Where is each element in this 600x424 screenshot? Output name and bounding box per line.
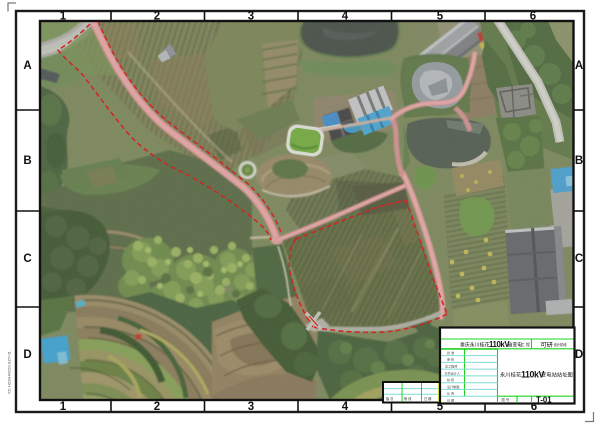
svg-text:工 程: 工 程 [521, 342, 530, 347]
svg-text:4: 4 [342, 401, 349, 413]
svg-text:C: C [23, 253, 31, 265]
svg-text:版 次: 版 次 [386, 396, 394, 401]
svg-text:D: D [575, 349, 583, 361]
svg-text:B: B [575, 155, 583, 167]
svg-text:可研: 可研 [541, 342, 553, 349]
svg-text:5: 5 [437, 11, 444, 23]
svg-text:A: A [575, 60, 583, 72]
svg-text:XC-HZ3H44220-SZT-01: XC-HZ3H44220-SZT-01 [7, 350, 12, 394]
svg-text:设计阶段: 设计阶段 [554, 342, 568, 347]
svg-text:批 准: 批 准 [447, 350, 454, 355]
svg-text:设计制图: 设计制图 [447, 384, 459, 389]
svg-text:日 期: 日 期 [424, 396, 431, 401]
svg-text:6: 6 [530, 11, 536, 23]
svg-text:1: 1 [60, 401, 67, 413]
svg-text:总工程师: 总工程师 [445, 364, 457, 369]
svg-text:3: 3 [248, 11, 254, 23]
svg-text:变电站站址图: 变电站站址图 [541, 371, 573, 379]
svg-text:主管设计人: 主管设计人 [445, 370, 460, 375]
svg-text:4: 4 [342, 11, 349, 23]
svg-text:校 核: 校 核 [447, 377, 454, 382]
svg-text:永川桂花: 永川桂花 [500, 371, 522, 379]
svg-text:修 改: 修 改 [404, 396, 412, 401]
svg-text:A: A [23, 60, 31, 72]
svg-text:图 号: 图 号 [502, 397, 510, 402]
svg-text:重庆永川桂花: 重庆永川桂花 [460, 341, 489, 348]
svg-text:日 期: 日 期 [447, 397, 454, 402]
svg-text:3: 3 [248, 401, 254, 413]
svg-text:比 例: 比 例 [447, 391, 454, 396]
svg-text:2: 2 [154, 401, 160, 413]
svg-text:2: 2 [154, 11, 160, 23]
svg-text:审 核: 审 核 [447, 357, 454, 362]
svg-text:B: B [23, 155, 31, 167]
svg-text:1: 1 [60, 11, 67, 23]
svg-text:C: C [575, 253, 583, 265]
svg-text:D: D [23, 349, 31, 361]
svg-text:T-01: T-01 [536, 396, 552, 405]
